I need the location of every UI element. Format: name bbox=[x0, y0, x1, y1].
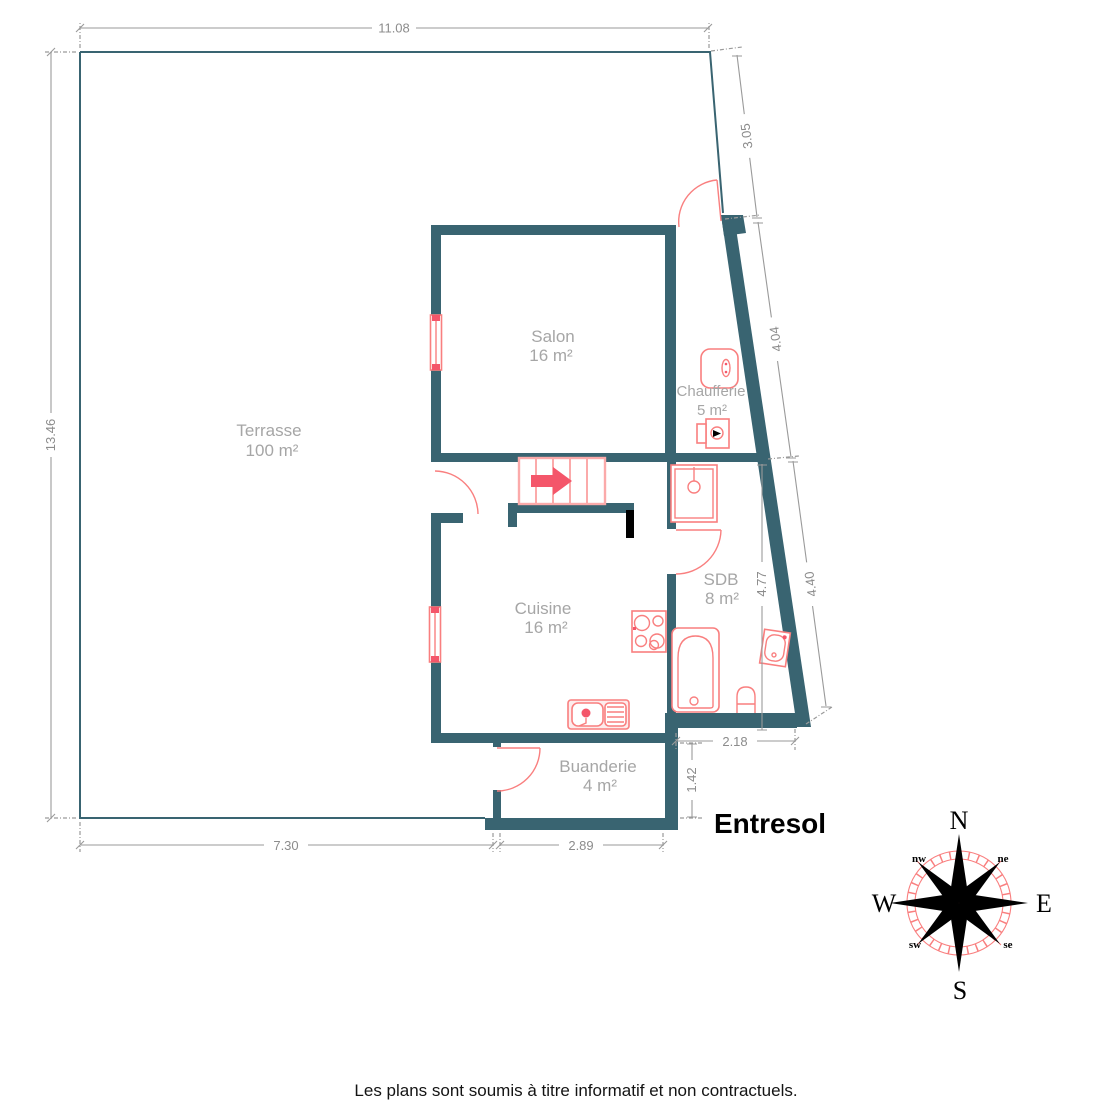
buanderie-left-wall-stub bbox=[493, 733, 501, 747]
toilet-icon bbox=[737, 687, 755, 713]
dimension-buanderie-bottom-width: 2.89 bbox=[496, 833, 667, 853]
cuisine-bottom-wall bbox=[431, 733, 676, 743]
stairs-wall-return bbox=[508, 503, 517, 527]
compass-north-label: N bbox=[950, 806, 969, 835]
compass-southeast-label: se bbox=[1003, 939, 1012, 951]
dimension-sdb-bottom-width: 2.18 bbox=[672, 729, 799, 750]
staircase bbox=[519, 458, 605, 504]
svg-text:16 m²: 16 m² bbox=[524, 618, 568, 637]
dim-label: 4.04 bbox=[766, 325, 784, 352]
dim-label: 4.77 bbox=[754, 571, 769, 596]
dim-label: 13.46 bbox=[43, 419, 58, 452]
salon-window-icon bbox=[431, 315, 442, 370]
room-label-salon: Salon 16 m² bbox=[529, 327, 574, 365]
compass-northeast-label: ne bbox=[998, 853, 1009, 865]
svg-text:8 m²: 8 m² bbox=[705, 589, 739, 608]
compass-southwest-label: sw bbox=[909, 939, 921, 951]
diagonal-wall-stub bbox=[721, 215, 746, 236]
svg-text:Terrasse: Terrasse bbox=[236, 421, 301, 440]
svg-text:SDB: SDB bbox=[704, 570, 739, 589]
compass-west-label: W bbox=[872, 889, 897, 918]
salon-east-wall bbox=[665, 225, 676, 462]
disclaimer: Les plans sont soumis à titre informatif… bbox=[354, 1081, 797, 1100]
room-label-terrasse: Terrasse 100 m² bbox=[236, 421, 301, 460]
chaufferie-sdb-divider-wall bbox=[665, 453, 768, 462]
dim-label: 7.30 bbox=[273, 838, 298, 853]
hall-door-swing-icon bbox=[435, 471, 478, 514]
washbasin-icon bbox=[760, 629, 791, 666]
boiler-icon bbox=[697, 419, 729, 448]
cuisine-window-icon bbox=[430, 607, 441, 662]
buanderie-door-swing-icon bbox=[497, 748, 540, 791]
dim-label: 2.89 bbox=[568, 838, 593, 853]
room-label-cuisine: Cuisine 16 m² bbox=[515, 599, 572, 637]
buanderie-left-wall bbox=[493, 790, 501, 818]
floorplan-canvas: 11.08 13.46 3.05 4.04 bbox=[0, 0, 1104, 1104]
compass-rose: N E S W nw ne sw se bbox=[872, 806, 1052, 1005]
svg-text:Chaufferie: Chaufferie bbox=[677, 383, 746, 400]
buanderie-bottom-wall bbox=[485, 818, 678, 830]
dimension-terrace-bottom-width: 7.30 bbox=[76, 822, 497, 853]
room-label-chaufferie: Chaufferie 5 m² bbox=[677, 383, 746, 419]
room-label-buanderie: Buanderie 4 m² bbox=[559, 757, 637, 795]
buanderie-right-wall bbox=[665, 713, 678, 830]
bathtub-icon bbox=[672, 628, 719, 712]
room-label-sdb: SDB 8 m² bbox=[704, 570, 740, 608]
compass-south-label: S bbox=[953, 976, 967, 1005]
svg-text:100 m²: 100 m² bbox=[246, 441, 299, 460]
svg-text:Cuisine: Cuisine bbox=[515, 599, 572, 618]
entrance-door-swing-icon bbox=[679, 180, 721, 227]
svg-text:5 m²: 5 m² bbox=[697, 402, 727, 419]
kitchen-sink-icon bbox=[568, 700, 629, 729]
terrace-top-edge bbox=[80, 52, 723, 213]
svg-text:Salon: Salon bbox=[531, 327, 574, 346]
dim-label: 3.05 bbox=[738, 123, 756, 150]
salon-top-wall bbox=[433, 225, 676, 235]
level-title: Entresol bbox=[714, 808, 826, 839]
sdb-door-swing-icon bbox=[676, 530, 721, 574]
shower-icon bbox=[671, 465, 717, 522]
dimension-top-width: 11.08 bbox=[76, 21, 712, 49]
dim-label: 4.40 bbox=[801, 570, 819, 597]
svg-text:Buanderie: Buanderie bbox=[559, 757, 637, 776]
compass-northwest-label: nw bbox=[912, 853, 926, 865]
dim-label: 1.42 bbox=[684, 767, 699, 792]
door-post bbox=[626, 510, 634, 538]
windows bbox=[430, 315, 442, 662]
cooktop-icon bbox=[632, 611, 666, 652]
compass-east-label: E bbox=[1036, 889, 1052, 918]
sdb-bottom-wall bbox=[667, 713, 797, 728]
dim-label: 11.08 bbox=[378, 21, 410, 36]
dim-label: 2.18 bbox=[722, 734, 747, 749]
dimension-buanderie-right-height: 1.42 bbox=[680, 743, 703, 818]
svg-text:4 m²: 4 m² bbox=[583, 776, 617, 795]
svg-text:16 m²: 16 m² bbox=[529, 346, 573, 365]
dimension-left-height: 13.46 bbox=[40, 48, 76, 822]
